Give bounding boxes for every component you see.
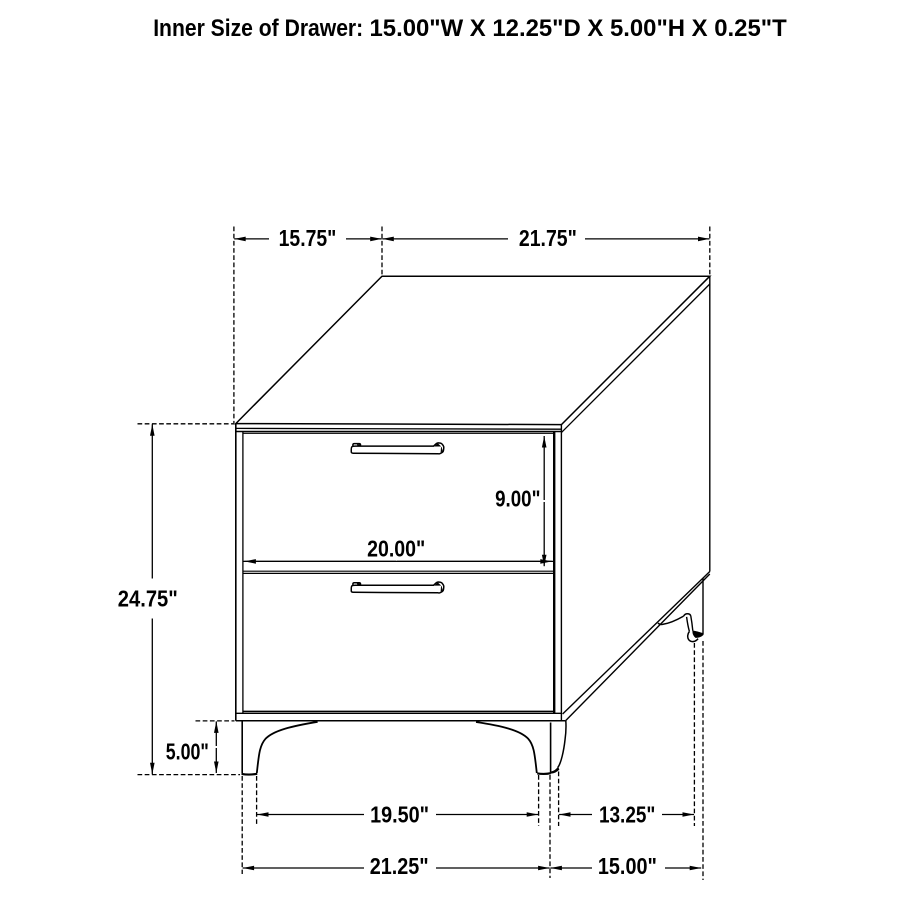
- svg-text:15.00"W X 12.25"D X 5.00"H X 0: 15.00"W X 12.25"D X 5.00"H X 0.25"T: [370, 16, 788, 42]
- svg-text:5.00": 5.00": [166, 739, 209, 765]
- svg-text:19.50": 19.50": [370, 802, 429, 828]
- svg-text:9.00": 9.00": [495, 486, 540, 512]
- svg-text:21.25": 21.25": [370, 853, 429, 879]
- svg-text:21.75": 21.75": [519, 225, 577, 251]
- svg-text:13.25": 13.25": [599, 802, 656, 828]
- svg-text:Inner Size of Drawer:: Inner Size of Drawer:: [153, 16, 363, 42]
- svg-text:15.75": 15.75": [279, 225, 337, 251]
- svg-text:15.00": 15.00": [598, 853, 657, 879]
- svg-text:24.75": 24.75": [118, 585, 178, 611]
- svg-text:20.00": 20.00": [367, 535, 425, 561]
